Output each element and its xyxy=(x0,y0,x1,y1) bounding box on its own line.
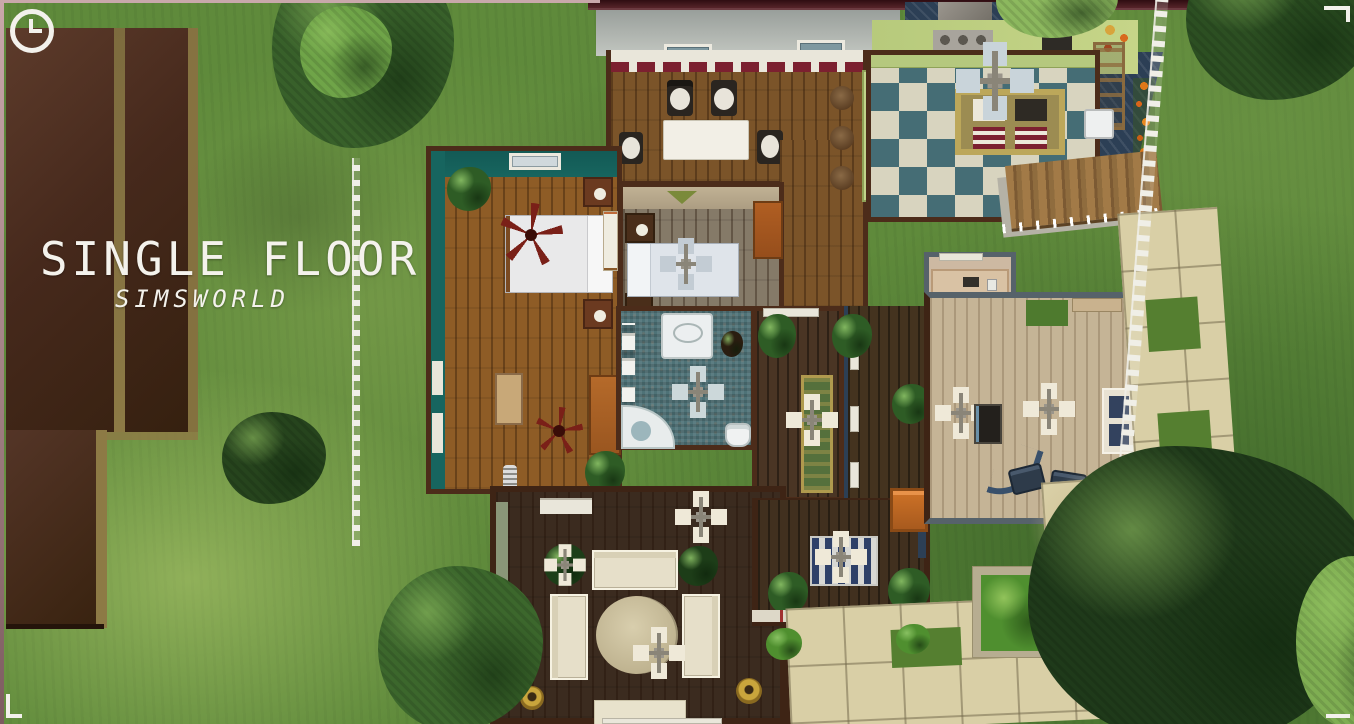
pennant xyxy=(667,191,697,204)
frame-edge-top xyxy=(0,0,600,3)
ceiling-fan xyxy=(681,259,691,269)
dining-chair xyxy=(711,80,737,116)
ceiling-fan xyxy=(807,415,817,425)
toilet xyxy=(725,423,751,447)
wall-trim-maroon xyxy=(611,62,863,72)
round-rug xyxy=(596,596,678,674)
shelf-unit xyxy=(603,211,618,271)
living-room xyxy=(490,486,786,724)
roof-ridge xyxy=(188,28,198,432)
towel-rack xyxy=(622,323,635,375)
runner-rug xyxy=(801,375,833,493)
storage-chest xyxy=(890,488,928,532)
wall-cabinet xyxy=(432,361,443,395)
torch-lamp xyxy=(736,678,762,704)
bedroom-window xyxy=(509,153,561,170)
grass-gap xyxy=(1145,296,1201,352)
house-roof xyxy=(6,28,198,432)
roof-edge-shadow xyxy=(6,624,104,629)
roof-ridge xyxy=(96,430,107,628)
hedge-view xyxy=(1026,300,1068,326)
dark-plant xyxy=(721,331,743,357)
house-roof xyxy=(6,430,104,628)
frame-edge-left xyxy=(0,0,4,724)
topiary xyxy=(678,546,718,586)
ceiling-fan xyxy=(1044,404,1054,414)
dining-table xyxy=(663,120,749,160)
tree xyxy=(378,566,543,724)
crop-mark-top-right xyxy=(1324,6,1350,22)
bar-stool xyxy=(830,166,854,190)
roof-ridge xyxy=(104,432,198,440)
hallway-upper xyxy=(780,140,868,312)
ceiling-fan xyxy=(836,552,846,562)
dresser-tall xyxy=(753,201,783,259)
ceiling-lamp-glass xyxy=(988,74,1003,89)
door-sill xyxy=(939,253,983,261)
kitchen-sink xyxy=(1084,109,1114,139)
lattice-fence-left xyxy=(352,158,360,546)
tv-set xyxy=(974,404,1002,444)
ceiling-fan-red xyxy=(499,203,563,267)
dining-chair xyxy=(667,80,693,116)
crop-mark-bottom-left xyxy=(6,694,22,718)
window-sill xyxy=(602,718,722,724)
roof-slope-gray xyxy=(596,8,900,56)
second-bedroom xyxy=(618,182,784,316)
nightstand xyxy=(583,299,613,329)
wall-cabinet xyxy=(432,413,443,453)
ceiling-fan xyxy=(561,561,569,569)
bush xyxy=(222,412,326,504)
ceiling-fan xyxy=(654,648,664,658)
ceiling-fan xyxy=(956,408,966,418)
bathroom xyxy=(616,306,756,450)
ceiling-fan xyxy=(693,387,703,397)
ceiling-fan-red xyxy=(535,407,583,455)
window-frame xyxy=(850,406,859,432)
bar-stool xyxy=(830,86,854,110)
window-frame xyxy=(850,462,859,488)
crop-mark-bottom-right xyxy=(1326,714,1350,718)
kitchen-rug xyxy=(955,89,1065,155)
wall-trim-white xyxy=(611,50,863,62)
page-title: SINGLE FLOOR xyxy=(30,236,430,282)
game-viewport[interactable]: SINGLE FLOOR SIMSWORLD xyxy=(0,0,1354,724)
dining-chair xyxy=(619,132,643,164)
kitchen-counter xyxy=(871,55,1095,68)
potted-plant xyxy=(447,167,491,211)
sofa xyxy=(550,594,588,680)
bathroom-sink-counter xyxy=(661,313,713,359)
single-bed xyxy=(627,243,739,297)
clock-icon xyxy=(10,9,54,53)
page-subtitle: SIMSWORLD xyxy=(0,287,405,311)
papers xyxy=(540,498,592,514)
sofa xyxy=(592,550,678,590)
side-table xyxy=(1072,298,1122,312)
ceiling-fan xyxy=(696,512,706,522)
roof-ridge xyxy=(114,28,125,432)
sofa xyxy=(682,594,720,678)
bar-stool xyxy=(830,126,854,150)
nightstand xyxy=(583,177,613,207)
corner-bathtub xyxy=(621,405,675,449)
master-bedroom xyxy=(426,146,622,494)
dresser xyxy=(495,373,523,425)
nightstand xyxy=(625,213,655,243)
